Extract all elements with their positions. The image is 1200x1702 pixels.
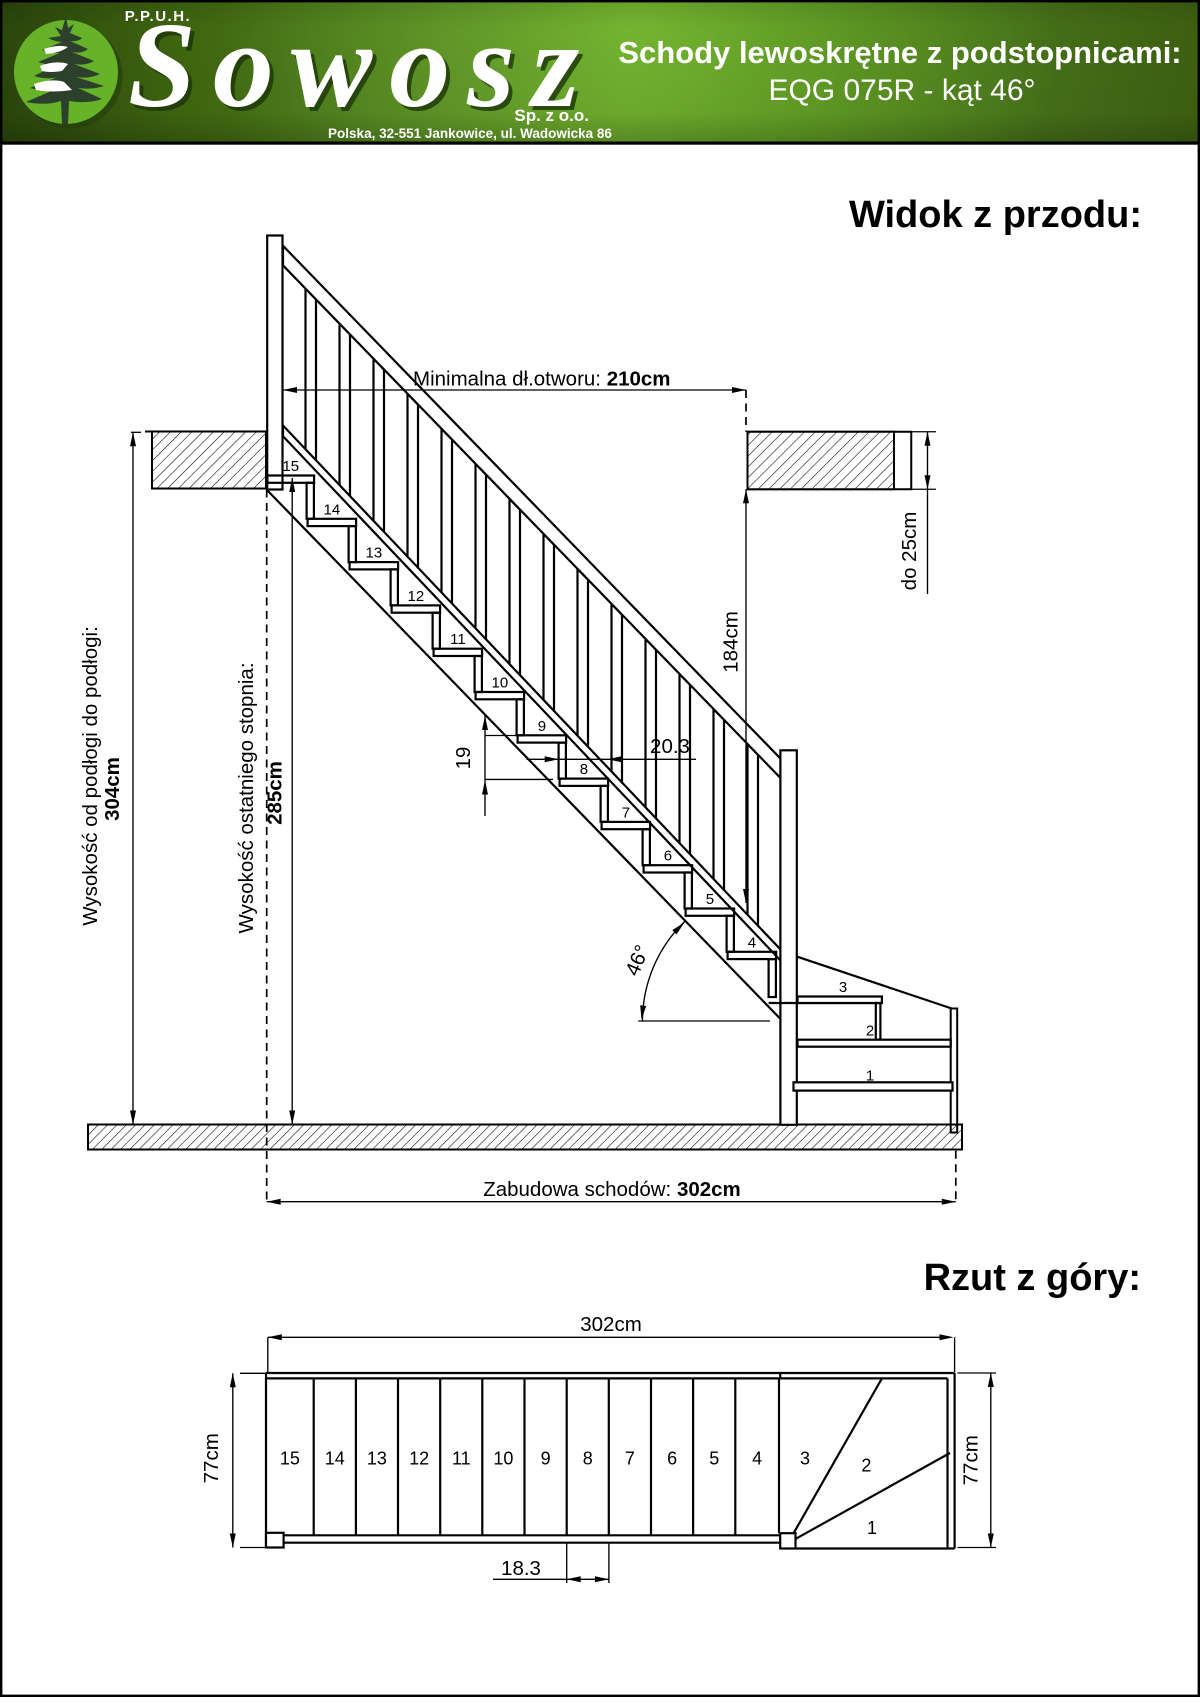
svg-text:2: 2 [866,1023,874,1040]
svg-text:EQG 075R - kąt 46°: EQG 075R - kąt 46° [768,74,1035,107]
svg-text:9: 9 [541,1449,551,1469]
svg-text:14: 14 [324,501,341,518]
svg-text:9: 9 [538,718,546,735]
svg-text:Schody lewoskrętne z podstopni: Schody lewoskrętne z podstopnicami: [618,35,1181,70]
svg-text:13: 13 [367,1449,387,1469]
svg-text:1: 1 [867,1518,877,1538]
svg-text:15: 15 [282,458,299,475]
svg-text:10: 10 [492,675,509,692]
svg-text:1: 1 [866,1068,874,1085]
svg-text:Rzut z góry:: Rzut z góry: [924,1257,1141,1299]
svg-text:20.3: 20.3 [650,735,690,758]
svg-text:15: 15 [280,1449,300,1469]
svg-text:Minimalna dł.otworu: 210cm: Minimalna dł.otworu: 210cm [413,368,671,391]
svg-text:3: 3 [800,1449,810,1469]
svg-text:7: 7 [622,804,630,821]
svg-text:12: 12 [408,588,425,605]
svg-text:10: 10 [493,1449,513,1469]
svg-text:2: 2 [861,1456,871,1476]
svg-text:8: 8 [583,1449,593,1469]
svg-text:4: 4 [752,1449,762,1469]
svg-text:304cm: 304cm [101,757,124,821]
svg-text:77cm: 77cm [960,1435,983,1485]
svg-text:14: 14 [325,1449,345,1469]
svg-text:13: 13 [366,545,383,562]
svg-text:19: 19 [452,747,475,770]
svg-text:3: 3 [839,979,847,996]
svg-text:7: 7 [625,1449,635,1469]
svg-text:184cm: 184cm [720,611,743,673]
svg-text:77cm: 77cm [200,1433,223,1483]
svg-text:Polska, 32-551 Jankowice, ul.: Polska, 32-551 Jankowice, ul. Wadowicka … [328,126,612,141]
svg-text:18.3: 18.3 [501,1557,541,1580]
svg-text:Wysokość od podłogi do podłogi: Wysokość od podłogi do podłogi: [79,626,102,926]
svg-text:Sp. z o.o.: Sp. z o.o. [514,106,589,125]
svg-text:5: 5 [706,891,714,908]
svg-text:Widok z przodu:: Widok z przodu: [849,194,1142,236]
svg-text:4: 4 [748,934,756,951]
svg-text:do 25cm: do 25cm [898,512,921,591]
svg-text:6: 6 [664,848,672,865]
svg-text:11: 11 [450,631,466,648]
svg-text:11: 11 [452,1449,471,1469]
svg-text:12: 12 [409,1449,429,1469]
svg-text:5: 5 [709,1449,719,1469]
svg-text:Wysokość ostatniego stopnia:: Wysokość ostatniego stopnia: [235,662,258,933]
svg-text:6: 6 [667,1449,677,1469]
svg-text:Zabudowa schodów: 302cm: Zabudowa schodów: 302cm [483,1178,741,1201]
svg-text:8: 8 [580,761,588,778]
svg-text:302cm: 302cm [580,1313,642,1336]
